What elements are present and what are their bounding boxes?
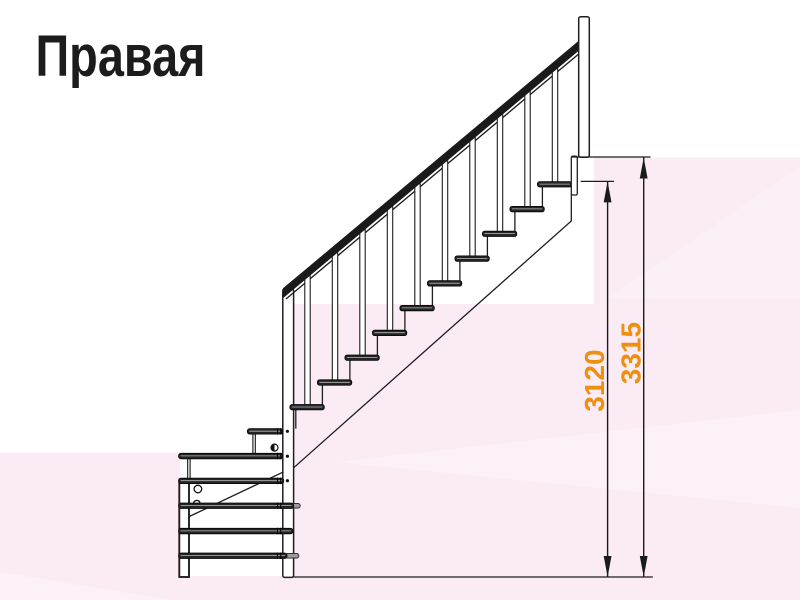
svg-text:Правая: Правая (36, 24, 206, 89)
svg-text:3120: 3120 (579, 349, 610, 411)
svg-text:3315: 3315 (615, 322, 646, 384)
